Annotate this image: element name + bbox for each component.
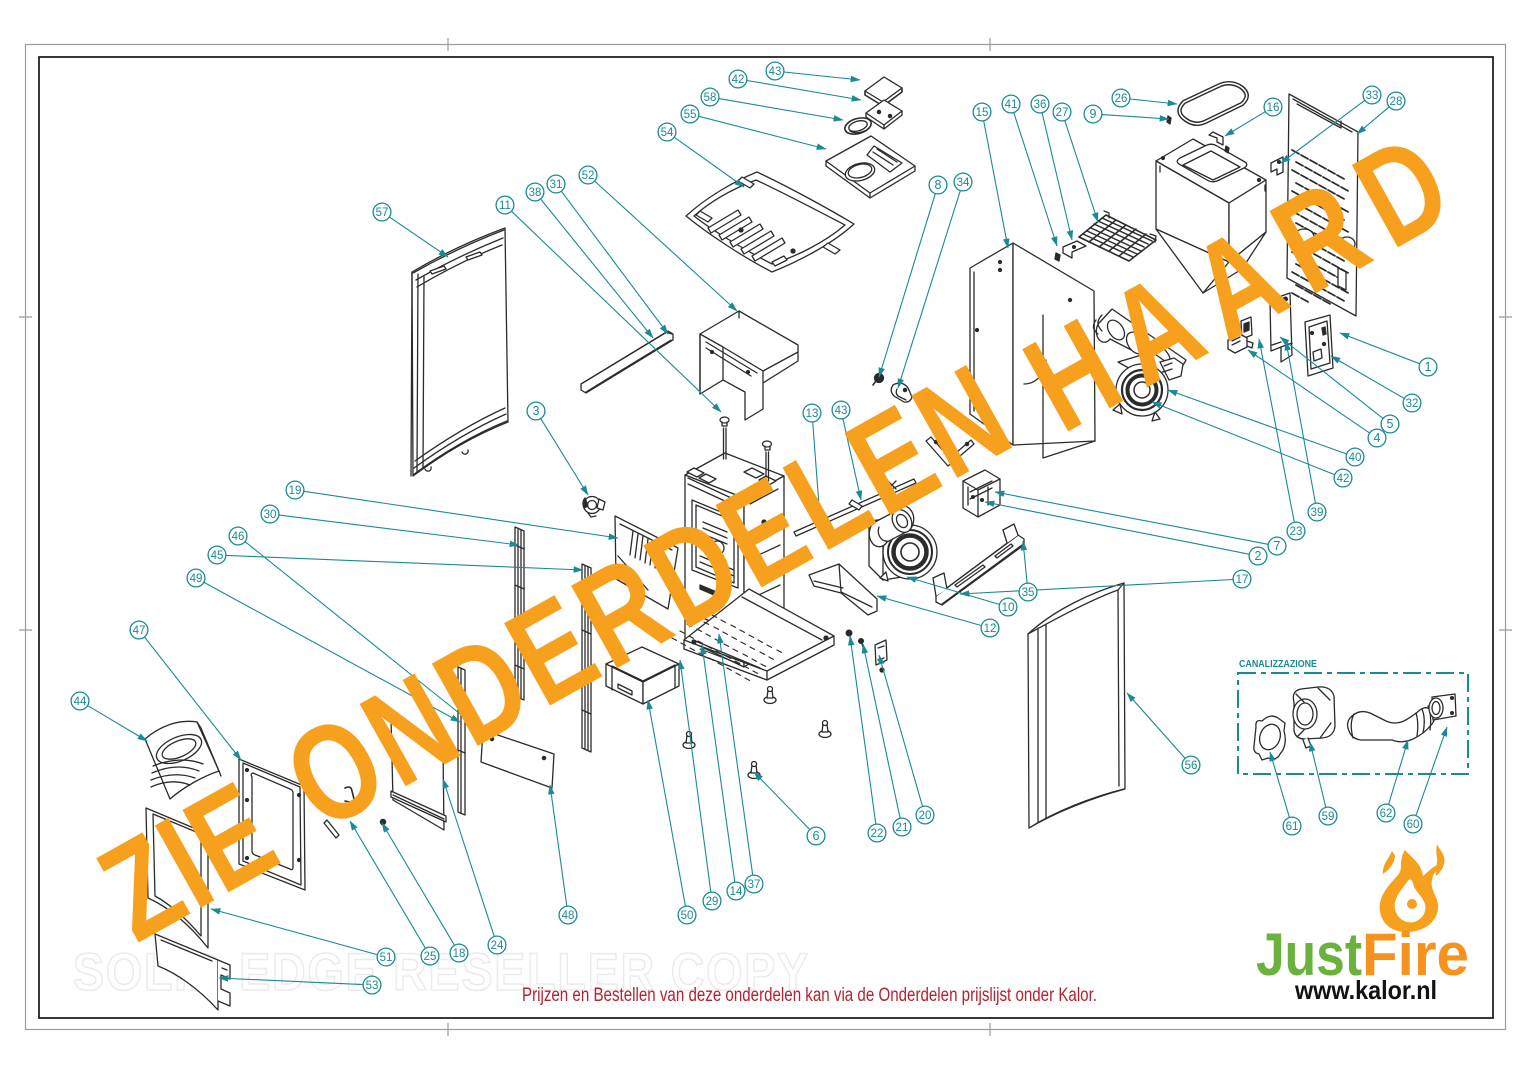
svg-text:58: 58: [704, 92, 717, 104]
svg-text:34: 34: [957, 177, 970, 189]
svg-text:53: 53: [366, 980, 379, 992]
svg-text:60: 60: [1407, 819, 1420, 831]
svg-text:22: 22: [871, 828, 884, 840]
svg-text:25: 25: [424, 951, 437, 963]
svg-text:42: 42: [732, 74, 745, 86]
svg-text:43: 43: [769, 66, 782, 78]
svg-text:21: 21: [896, 822, 909, 834]
svg-text:57: 57: [376, 207, 389, 219]
svg-text:32: 32: [1406, 398, 1419, 410]
svg-text:51: 51: [380, 952, 393, 964]
svg-text:8: 8: [935, 178, 942, 192]
svg-text:42: 42: [1337, 473, 1350, 485]
svg-text:40: 40: [1349, 452, 1362, 464]
svg-text:17: 17: [1236, 574, 1249, 586]
svg-text:6: 6: [813, 829, 820, 843]
svg-text:3: 3: [533, 404, 540, 418]
svg-text:45: 45: [211, 550, 224, 562]
svg-text:30: 30: [264, 509, 277, 521]
svg-text:20: 20: [919, 810, 932, 822]
svg-text:24: 24: [491, 940, 504, 952]
svg-text:33: 33: [1366, 90, 1379, 102]
svg-text:28: 28: [1390, 96, 1403, 108]
svg-text:56: 56: [1185, 760, 1198, 772]
svg-text:14: 14: [730, 886, 743, 898]
svg-text:31: 31: [550, 179, 563, 191]
svg-text:44: 44: [74, 696, 87, 708]
svg-text:29: 29: [706, 896, 719, 908]
svg-text:Prijzen en Bestellen van deze: Prijzen en Bestellen van deze onderdelen…: [522, 984, 1097, 1006]
svg-text:18: 18: [453, 948, 466, 960]
svg-text:9: 9: [1090, 107, 1097, 121]
svg-text:5: 5: [1387, 417, 1394, 431]
svg-text:47: 47: [133, 625, 146, 637]
svg-text:19: 19: [289, 485, 302, 497]
svg-text:23: 23: [1290, 526, 1303, 538]
svg-text:26: 26: [1115, 93, 1128, 105]
svg-text:54: 54: [661, 127, 674, 139]
svg-text:16: 16: [1267, 102, 1280, 114]
svg-text:36: 36: [1034, 99, 1047, 111]
svg-text:www.kalor.nl: www.kalor.nl: [1294, 975, 1437, 1005]
svg-text:10: 10: [1002, 602, 1015, 614]
svg-text:1: 1: [1425, 360, 1432, 374]
svg-text:2: 2: [1255, 549, 1262, 563]
svg-text:CANALIZZAZIONE: CANALIZZAZIONE: [1239, 659, 1317, 670]
svg-text:27: 27: [1056, 107, 1069, 119]
svg-text:62: 62: [1380, 808, 1393, 820]
svg-text:55: 55: [684, 109, 697, 121]
svg-text:48: 48: [562, 910, 575, 922]
svg-text:61: 61: [1286, 821, 1299, 833]
svg-text:11: 11: [499, 200, 511, 212]
svg-text:46: 46: [232, 531, 245, 543]
svg-text:12: 12: [984, 623, 997, 635]
svg-text:50: 50: [681, 910, 694, 922]
svg-text:39: 39: [1311, 507, 1324, 519]
svg-text:35: 35: [1022, 587, 1035, 599]
svg-text:49: 49: [190, 573, 203, 585]
svg-text:41: 41: [1005, 99, 1018, 111]
svg-text:4: 4: [1374, 431, 1381, 445]
svg-text:59: 59: [1322, 811, 1335, 823]
svg-text:38: 38: [529, 187, 542, 199]
svg-text:37: 37: [748, 879, 761, 891]
svg-text:52: 52: [582, 170, 595, 182]
svg-text:15: 15: [976, 107, 989, 119]
svg-text:7: 7: [1274, 539, 1281, 553]
